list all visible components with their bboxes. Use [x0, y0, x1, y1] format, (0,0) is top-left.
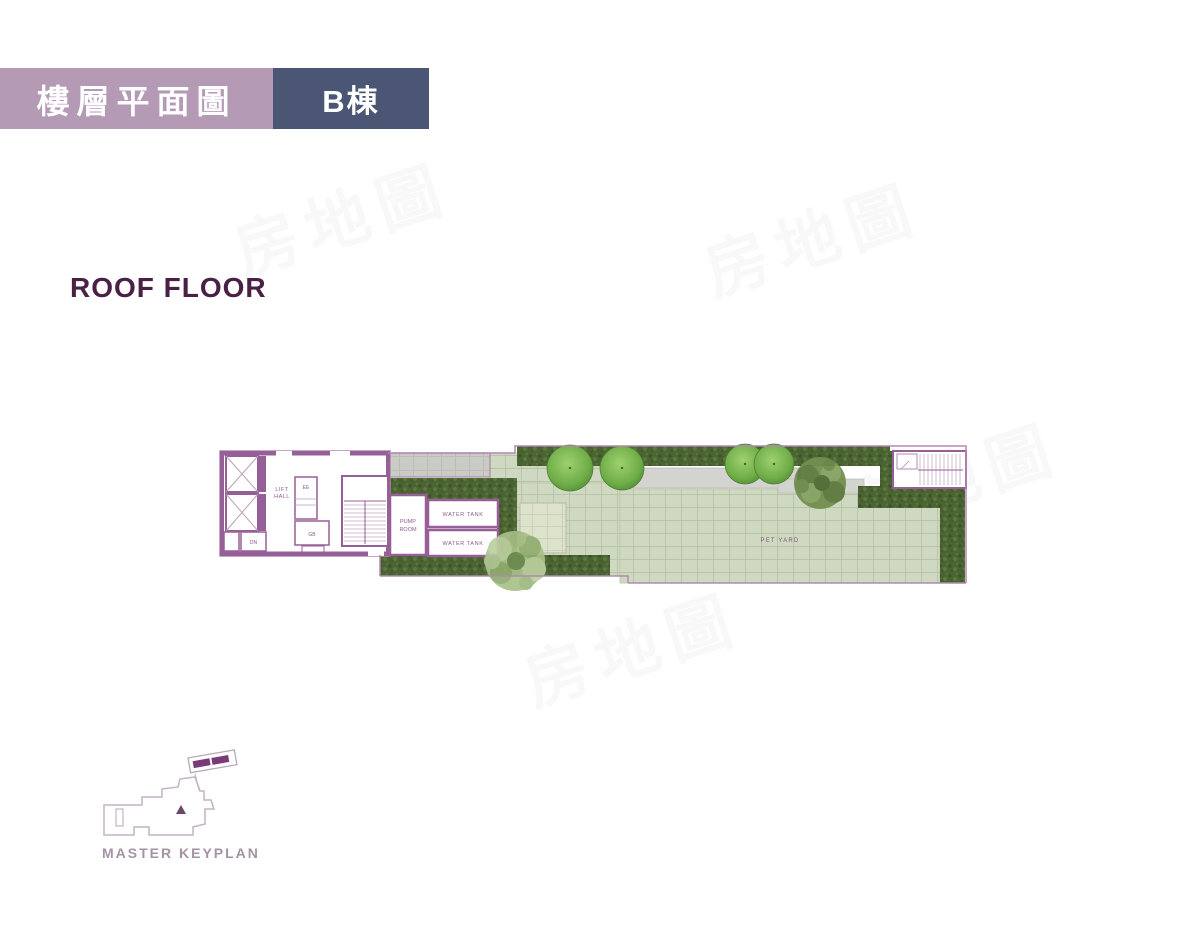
roof-stairwell	[893, 451, 966, 488]
lift-shaft-1	[226, 456, 258, 492]
core-wall	[258, 494, 266, 531]
pump-room: PUMP ROOM	[390, 495, 426, 555]
core-wall	[258, 456, 266, 492]
water-tank-1: WATER TANK	[428, 500, 498, 527]
lift-hall-label: LIFT HALL	[274, 487, 290, 500]
building-core: DN LIFT HALL EE GB	[220, 451, 390, 556]
watermark: 房地圖	[221, 138, 461, 294]
water-tank-1-label: WATER TANK	[443, 512, 484, 518]
ee-room: EE	[295, 477, 317, 519]
pump-room-line1: PUMP	[400, 519, 416, 525]
floor-plan-banner: 樓層平面圖	[0, 68, 273, 129]
round-tree	[754, 444, 794, 484]
gb-label: GB	[308, 532, 316, 538]
header-banner: 樓層平面圖 B棟	[0, 68, 429, 129]
lift-hall-line2: HALL	[274, 494, 290, 500]
small-room	[224, 532, 239, 551]
round-tree	[600, 446, 644, 490]
master-keyplan	[92, 748, 252, 844]
master-keyplan-label: MASTER KEYPLAN	[102, 845, 272, 861]
pump-room-line2: ROOM	[399, 527, 417, 533]
watermark: 房地圖	[691, 158, 931, 314]
lift-hall-line1: LIFT	[275, 487, 288, 493]
dn-label: DN	[250, 540, 258, 546]
textured-tree-pale	[484, 531, 546, 591]
water-tank-2-label: WATER TANK	[443, 541, 484, 547]
lift-shaft-2	[226, 494, 258, 531]
building-b-banner: B棟	[273, 68, 429, 129]
pet-yard-label: PET YARD	[761, 538, 800, 544]
round-tree	[547, 445, 593, 491]
gravel-strip	[388, 453, 490, 477]
ee-label: EE	[303, 485, 310, 491]
textured-tree-olive	[794, 457, 846, 509]
keyplan-building-b-highlight	[188, 750, 237, 773]
dn-stair-box: DN	[241, 532, 266, 551]
floor-plan-svg: DN LIFT HALL EE GB PUMP ROOM	[218, 443, 968, 593]
page-title: ROOF FLOOR	[70, 272, 267, 304]
keyplan-svg	[92, 748, 252, 844]
roof-floor-plan: DN LIFT HALL EE GB PUMP ROOM	[218, 443, 968, 593]
core-stairwell	[342, 476, 388, 546]
